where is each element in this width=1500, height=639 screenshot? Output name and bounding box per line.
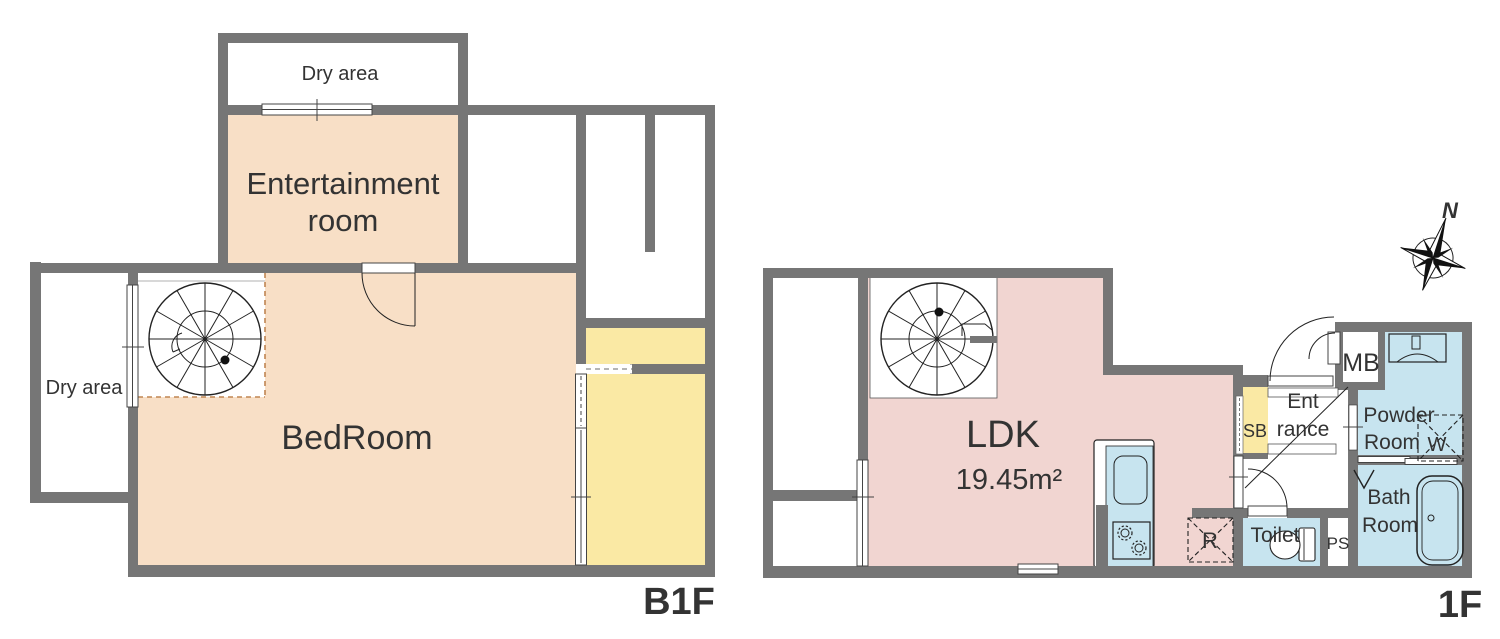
ldk-area-label: 19.45m² <box>956 464 1063 496</box>
floorplan-page: Dry area Entertainment room Dry area Bed… <box>0 0 1500 639</box>
entrance-label2: rance <box>1277 418 1330 441</box>
dry-area-top-label: Dry area <box>302 63 380 85</box>
pipe-space-label: PS <box>1327 534 1350 553</box>
spiral-staircase-icon <box>138 273 265 397</box>
bath-room-label2: Room <box>1362 514 1418 537</box>
floorplan-canvas: Dry area Entertainment room Dry area Bed… <box>0 0 1500 639</box>
entrance-door-icon <box>1268 317 1340 386</box>
staircase-landing <box>138 273 265 397</box>
powder-room-label2: Room <box>1364 431 1420 454</box>
f1-floor-label: 1F <box>1438 584 1482 626</box>
entrance-label: Ent <box>1287 390 1319 413</box>
toilet-label: Toilet <box>1250 524 1299 547</box>
shoe-box-label: SB <box>1243 421 1267 441</box>
f1-plan: N LDK 19.45m² SB Ent rance MB Powder Roo… <box>763 198 1482 626</box>
bath-room-label: Bath <box>1367 486 1410 509</box>
staircase-landing <box>870 273 997 398</box>
powder-room-label: Powder <box>1363 404 1434 427</box>
compass-north-label: N <box>1442 198 1459 223</box>
window-icon <box>1018 564 1058 574</box>
entertainment-room-label2: room <box>308 203 379 238</box>
room-closet-floor <box>586 374 705 565</box>
room-closet-upper-floor <box>586 328 705 364</box>
stair-wall-stub <box>970 336 997 343</box>
stair-pole-dot <box>935 308 944 317</box>
meter-box-label: MB <box>1342 349 1380 377</box>
entertainment-room-label: Entertainment <box>247 166 440 201</box>
washing-machine-label: W <box>1428 434 1447 456</box>
b1f-floor-label: B1F <box>643 581 715 623</box>
cupboard-panel-icon <box>1236 396 1243 454</box>
b1f-plan: Dry area Entertainment room Dry area Bed… <box>30 33 715 623</box>
spiral-staircase-icon <box>870 273 997 398</box>
stair-pole-dot <box>221 356 230 365</box>
shoe-box-floor <box>1243 387 1268 453</box>
compass-icon: N <box>1390 198 1478 301</box>
bedroom-label: BedRoom <box>281 419 432 457</box>
refrigerator-label: R <box>1202 528 1218 553</box>
dry-area-left-label: Dry area <box>46 377 124 399</box>
toilet-door-icon <box>1248 469 1287 516</box>
ldk-label: LDK <box>966 414 1040 456</box>
